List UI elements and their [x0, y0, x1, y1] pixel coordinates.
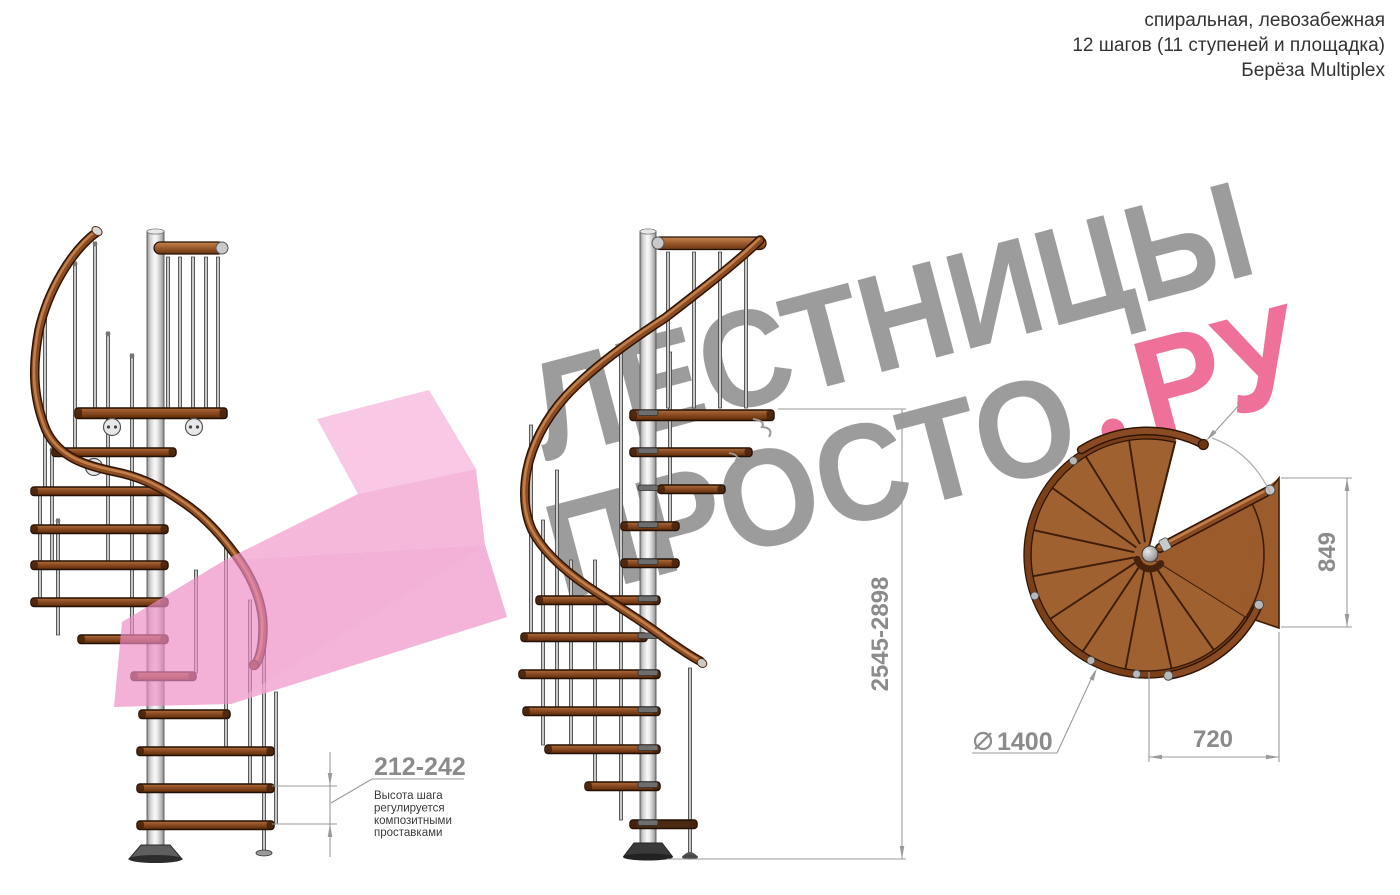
- svg-text:849: 849: [1314, 532, 1341, 572]
- svg-text:проставками: проставками: [374, 827, 442, 839]
- svg-text:212-242: 212-242: [374, 753, 466, 781]
- svg-text:12 шагов (11 ступеней и площад: 12 шагов (11 ступеней и площадка): [1072, 35, 1385, 56]
- svg-text:спиральная, левозабежная: спиральная, левозабежная: [1144, 10, 1385, 31]
- svg-text:720: 720: [1193, 726, 1233, 753]
- svg-text:композитными: композитными: [374, 815, 452, 827]
- svg-text:Берёза Multiplex: Берёза Multiplex: [1241, 60, 1385, 81]
- svg-text:1400: 1400: [997, 728, 1053, 756]
- svg-text:регулируется: регулируется: [374, 802, 445, 814]
- svg-text:Высота шага: Высота шага: [374, 790, 443, 802]
- svg-text:2545-2898: 2545-2898: [867, 577, 894, 692]
